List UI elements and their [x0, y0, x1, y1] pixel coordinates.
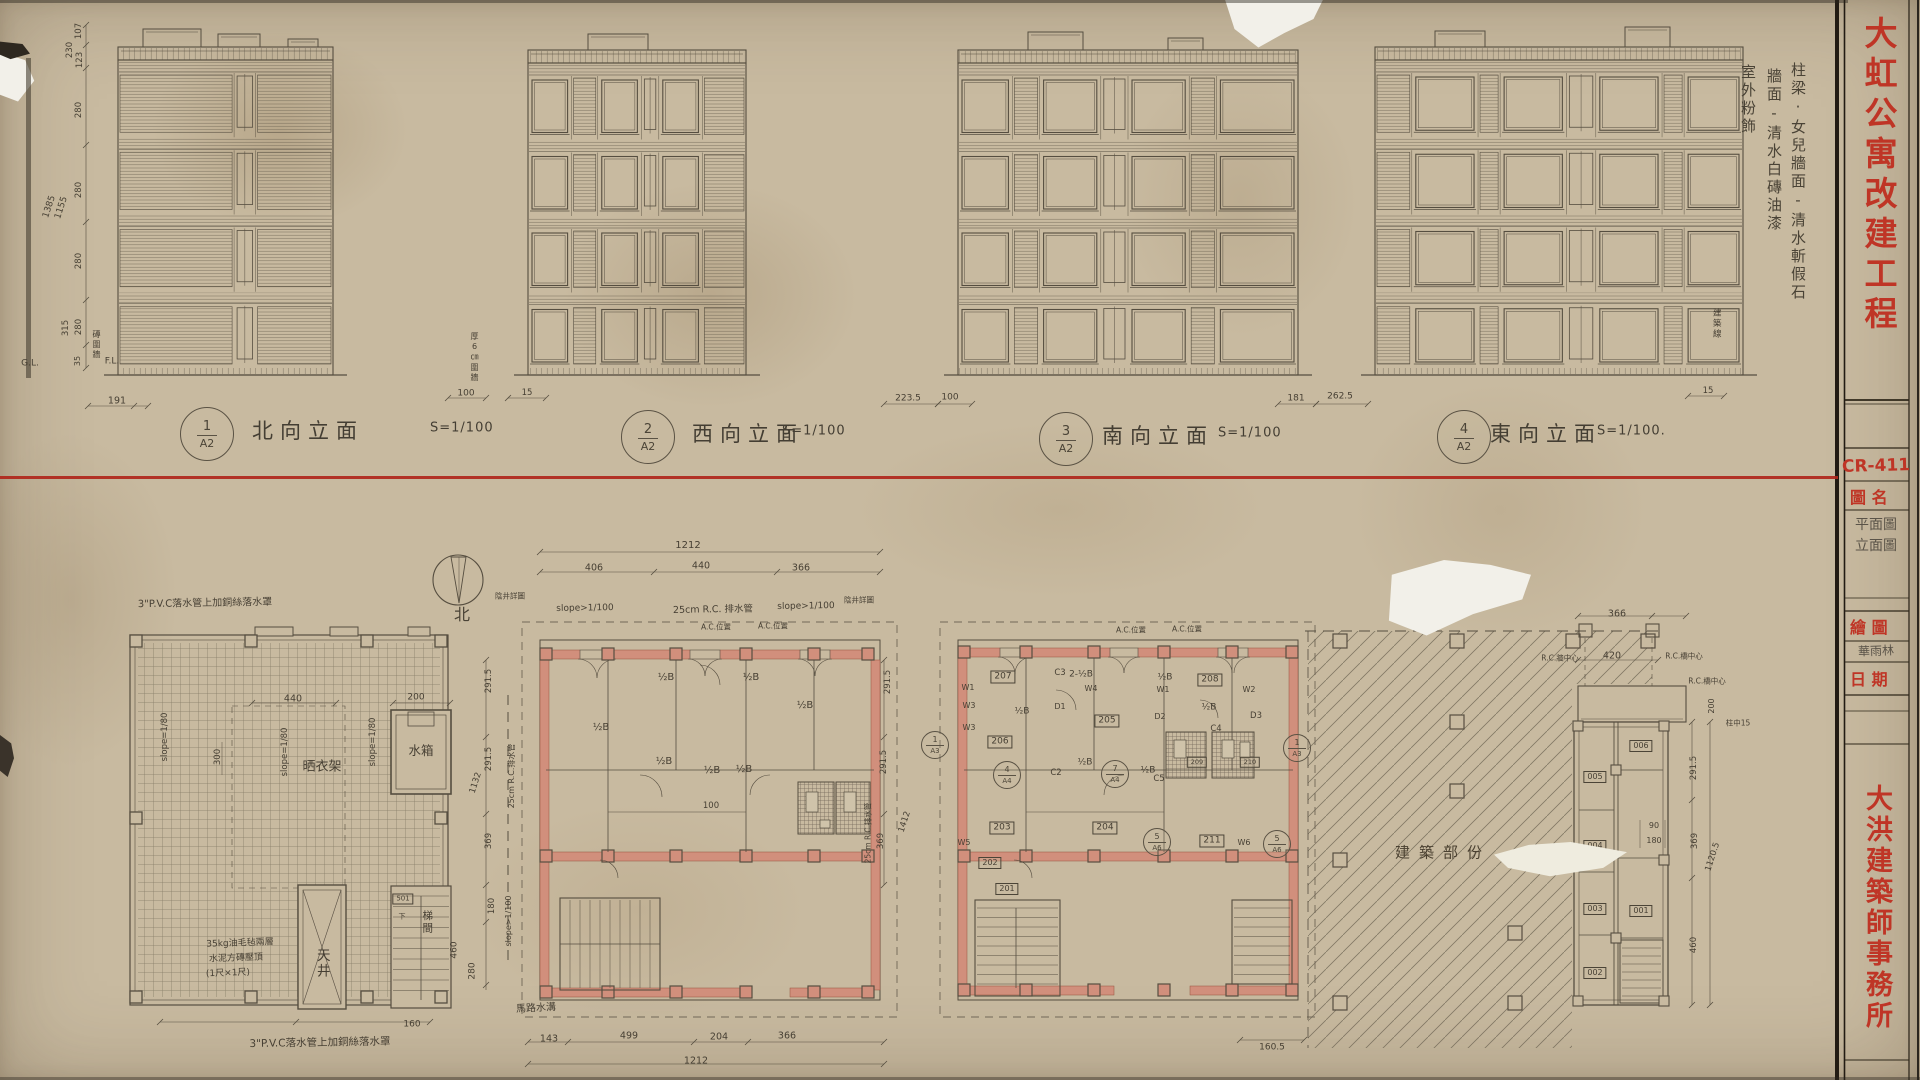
annotation-text: 300 — [214, 749, 223, 765]
annotation-text: C2 — [1050, 769, 1061, 778]
annotation-text: 291.5 — [1690, 756, 1699, 780]
annotation-text: 230 — [66, 42, 75, 58]
annotation-text: 180 — [488, 898, 497, 914]
elevation-label: 北向立面 — [252, 415, 364, 445]
annotation-text: slope=1/80 — [161, 713, 170, 762]
annotation-text: 90 — [1649, 822, 1659, 830]
annotation-text: ½B — [1015, 708, 1030, 717]
badge-number: 4 — [1454, 422, 1474, 439]
annotation-text: 002 — [1583, 967, 1606, 979]
annotation-text: G.L. — [21, 360, 39, 369]
annotation-text: 陰井詳圖 — [844, 596, 874, 604]
finish-note-col3: 室外粉飾 — [1738, 64, 1759, 174]
annotation-text: 陰井詳圖 — [495, 592, 525, 600]
annotation-text: 3"P.V.C落水管上加銅絲落水罩 — [249, 1037, 390, 1050]
annotation-text: R.C.牆中心 — [1541, 654, 1578, 662]
badge-number: 1 — [926, 735, 943, 746]
annotation-text: 35 — [74, 356, 82, 366]
annotation-text: 1212 — [675, 541, 700, 551]
blueprint-sheet: 大虹公寓改建工程 CR-411 圖 名 平面圖 立面圖 繪 圖 華雨林 日 期 … — [0, 0, 1920, 1080]
annotation-text: ½B — [797, 701, 814, 711]
annotation-text: 206 — [987, 736, 1012, 749]
annotation-text: 107 — [75, 23, 84, 39]
field-date: 日 期 — [1843, 664, 1909, 692]
annotation-text: slope>1/100 — [777, 602, 835, 612]
detail-ref-badge: 5A6 — [1143, 828, 1171, 856]
annotation-text: 207 — [990, 671, 1015, 684]
annotation-text: 143 — [540, 1034, 558, 1044]
annotation-text: 280 — [75, 253, 84, 269]
annotation-text: 460 — [451, 941, 460, 958]
annotation-text: (1尺×1尺) — [206, 969, 250, 980]
field-draftsman: 繪 圖 — [1843, 612, 1909, 640]
annotation-text: 204 — [1092, 822, 1117, 835]
annotation-text: 203 — [989, 822, 1014, 835]
detail-ref-badge: 4A4 — [993, 761, 1021, 789]
annotation-text: 100 — [941, 394, 958, 403]
annotation-text: 181 — [1287, 395, 1304, 404]
annotation-text: slope=1/80 — [281, 728, 290, 777]
elevation-scale: S=1/100 — [782, 424, 846, 439]
annotation-text: 1212 — [684, 1056, 708, 1066]
elevation-scale: S=1/100. — [1597, 424, 1666, 439]
annotation-text: 440 — [692, 561, 710, 571]
annotation-text: W1 — [962, 684, 975, 692]
annotation-text: 梯間 — [422, 910, 433, 935]
detail-ref-badge: 7A4 — [1101, 760, 1129, 788]
annotation-text: 005 — [1583, 771, 1606, 783]
elevation-ref-badge: 1A2 — [180, 407, 234, 461]
annotation-text: W2 — [1243, 686, 1256, 694]
annotation-text: 180 — [1646, 837, 1661, 845]
draftsman-name: 華雨林 — [1843, 640, 1910, 661]
detail-ref-badge: 5A6 — [1263, 830, 1291, 858]
annotation-text: ½B — [656, 757, 673, 767]
annotation-text: 280 — [75, 102, 84, 118]
annotation-text: D1 — [1054, 703, 1065, 711]
annotation-text: ½B — [736, 765, 753, 775]
annotation-text: 262.5 — [1327, 393, 1353, 402]
annotation-text: ½B — [1158, 674, 1173, 683]
annotation-text: slope>1/100 — [505, 895, 513, 946]
annotation-text: 291.5 — [485, 669, 494, 693]
annotation-text: ½B — [1202, 704, 1217, 713]
elevation-ref-badge: 3A2 — [1039, 412, 1093, 466]
annotation-text: W1 — [1157, 686, 1170, 694]
annotation-text: 160.5 — [1259, 1044, 1285, 1053]
annotation-text: 25cm R.C. 排水管 — [673, 605, 753, 616]
drawing-name-2: 立面圖 — [1843, 535, 1909, 555]
annotation-text: 水泥方磚壓頂 — [209, 954, 263, 965]
annotation-text: 210 — [1240, 757, 1260, 768]
annotation-text: A.C.位置 — [1172, 625, 1202, 633]
finish-note-col2: 牆面-清水白磚油漆 — [1764, 68, 1785, 268]
annotation-text: W4 — [1085, 685, 1098, 693]
badge-number: 4 — [998, 765, 1015, 776]
annotation-text: A.C.位置 — [758, 622, 788, 630]
firm-name: 大洪建築師事務所 — [1857, 784, 1896, 1056]
project-title: 大虹公寓改建工程 — [1854, 16, 1902, 376]
annotation-text: 15 — [1703, 387, 1714, 396]
annotation-text: 160 — [403, 1021, 420, 1030]
annotation-text: 280 — [75, 182, 84, 198]
annotation-text: 100 — [457, 390, 474, 399]
annotation-text: ½B — [743, 673, 760, 683]
annotation-text: 501 — [392, 894, 413, 905]
annotation-text: 202 — [978, 857, 1001, 869]
elevation-label: 南向立面 — [1102, 420, 1214, 450]
annotation-text: 209 — [1187, 757, 1207, 768]
annotation-text: 200 — [407, 694, 424, 703]
annotation-text: W3 — [963, 702, 976, 710]
annotation-text: 201 — [995, 883, 1018, 895]
annotation-text: 291.5 — [485, 747, 494, 771]
annotation-text: 厚6㎝圍牆 — [470, 332, 478, 383]
annotation-text: 123 — [76, 52, 85, 68]
badge-sheet: A2 — [1059, 441, 1074, 455]
finish-note-col1: 柱梁·女兒牆面-清水斬假石 — [1788, 62, 1809, 302]
drawing-name-1: 平面圖 — [1843, 514, 1909, 534]
badge-number: 1 — [1288, 738, 1305, 749]
detail-ref-badge: 1A3 — [1283, 734, 1311, 762]
annotation-text: W6 — [1238, 839, 1251, 847]
annotation-text: 205 — [1094, 715, 1119, 728]
badge-sheet: A3 — [1292, 749, 1301, 758]
elevation-scale: S=1/100 — [430, 421, 494, 436]
annotation-text: 366 — [792, 563, 810, 573]
annotation-text: 003 — [1583, 903, 1606, 915]
annotation-text: W5 — [958, 839, 971, 847]
elevation-label: 東向立面 — [1490, 418, 1602, 448]
annotation-text: 369 — [485, 833, 494, 849]
annotation-text: ½B — [1078, 759, 1093, 768]
annotation-text: 440 — [284, 694, 302, 704]
annotation-text: 001 — [1629, 905, 1652, 917]
annotation-text: 291.5 — [880, 750, 889, 774]
elevation-scale: S=1/100 — [1218, 426, 1282, 441]
badge-number: 5 — [1148, 832, 1165, 843]
drawing-canvas — [0, 0, 1920, 1080]
annotation-text: 柱中15 — [1726, 719, 1751, 727]
annotation-text: 25cm R.C.排水管 — [864, 803, 872, 864]
annotation-text: C3 — [1054, 669, 1065, 678]
annotation-text: 204 — [710, 1032, 728, 1042]
badge-sheet: A2 — [1457, 439, 1472, 453]
badge-sheet: A6 — [1152, 843, 1161, 852]
annotation-text: 100 — [703, 802, 719, 811]
annotation-text: 天井 — [314, 948, 328, 979]
annotation-text: D2 — [1154, 713, 1165, 721]
badge-sheet: A3 — [930, 746, 939, 755]
annotation-text: ½B — [1141, 767, 1156, 776]
annotation-text: 406 — [585, 563, 603, 573]
annotation-text: 水箱 — [408, 745, 433, 758]
badge-number: 2 — [638, 422, 658, 439]
annotation-text: 499 — [620, 1031, 638, 1041]
badge-sheet: A2 — [200, 436, 215, 450]
annotation-text: 馬路水溝 — [516, 1003, 556, 1015]
elevation-ref-badge: 2A2 — [621, 410, 675, 464]
annotation-text: 366 — [1608, 609, 1626, 619]
annotation-text: A.C.位置 — [701, 623, 731, 631]
annotation-text: ½B — [704, 766, 721, 776]
red-divider-line — [0, 476, 1838, 479]
annotation-text: R.C.橋中心 — [1688, 677, 1725, 685]
annotation-text: 200 — [1708, 698, 1716, 713]
annotation-text: 211 — [1199, 835, 1224, 848]
annotation-text: 15 — [522, 389, 533, 398]
annotation-text: R.C.橋中心 — [1665, 652, 1702, 660]
badge-sheet: A2 — [641, 439, 656, 453]
annotation-text: 建築線 — [1712, 308, 1721, 340]
annotation-text: 420 — [1603, 651, 1621, 661]
badge-sheet: A4 — [1110, 775, 1119, 784]
annotation-text: slope=1/80 — [369, 718, 378, 767]
annotation-text: 004 — [1583, 840, 1606, 852]
annotation-text: 280 — [469, 962, 478, 979]
annotation-text: 2-½B — [1069, 671, 1093, 680]
annotation-text: slope>1/100 — [556, 604, 614, 614]
field-drawing-name: 圖 名 — [1843, 483, 1909, 509]
annotation-text: 369 — [1691, 833, 1700, 849]
annotation-text: F.L. — [105, 358, 119, 367]
badge-sheet: A6 — [1272, 845, 1281, 854]
annotation-text: 下 — [399, 914, 406, 921]
badge-number: 7 — [1106, 764, 1123, 775]
annotation-text: 366 — [778, 1031, 796, 1041]
annotation-text: 460 — [1690, 937, 1699, 953]
annotation-text: 315 — [62, 320, 71, 336]
annotation-text: W3 — [963, 724, 976, 732]
annotation-text: 291.5 — [884, 670, 893, 694]
annotation-text: 369 — [877, 833, 886, 849]
badge-number: 1 — [197, 419, 217, 436]
annotation-text: D3 — [1250, 712, 1262, 721]
annotation-text: C4 — [1210, 725, 1221, 734]
annotation-text: 晒衣架 — [302, 761, 341, 774]
detail-ref-badge: 1A3 — [921, 731, 949, 759]
badge-number: 3 — [1056, 424, 1076, 441]
annotation-text: 25cm R.C.排水管 — [508, 744, 516, 809]
annotation-text: A.C.位置 — [1116, 626, 1146, 634]
annotation-text: 191 — [108, 396, 126, 406]
annotation-text: ½B — [593, 723, 610, 733]
annotation-text: 磚圍牆 — [92, 330, 100, 360]
badge-number: 5 — [1268, 834, 1285, 845]
annotation-text: 280 — [75, 319, 84, 335]
compass-north-label: 北 — [448, 606, 472, 625]
annotation-text: 223.5 — [895, 395, 921, 404]
annotation-text: ½B — [658, 673, 675, 683]
annotation-text: C5 — [1153, 775, 1164, 784]
annotation-text: 208 — [1197, 674, 1222, 687]
elevation-ref-badge: 4A2 — [1437, 410, 1491, 464]
annotation-text: 建築部份 — [1395, 846, 1491, 861]
badge-sheet: A4 — [1002, 776, 1011, 785]
annotation-text: 006 — [1629, 740, 1652, 752]
drawing-code: CR-411 — [1843, 451, 1910, 480]
